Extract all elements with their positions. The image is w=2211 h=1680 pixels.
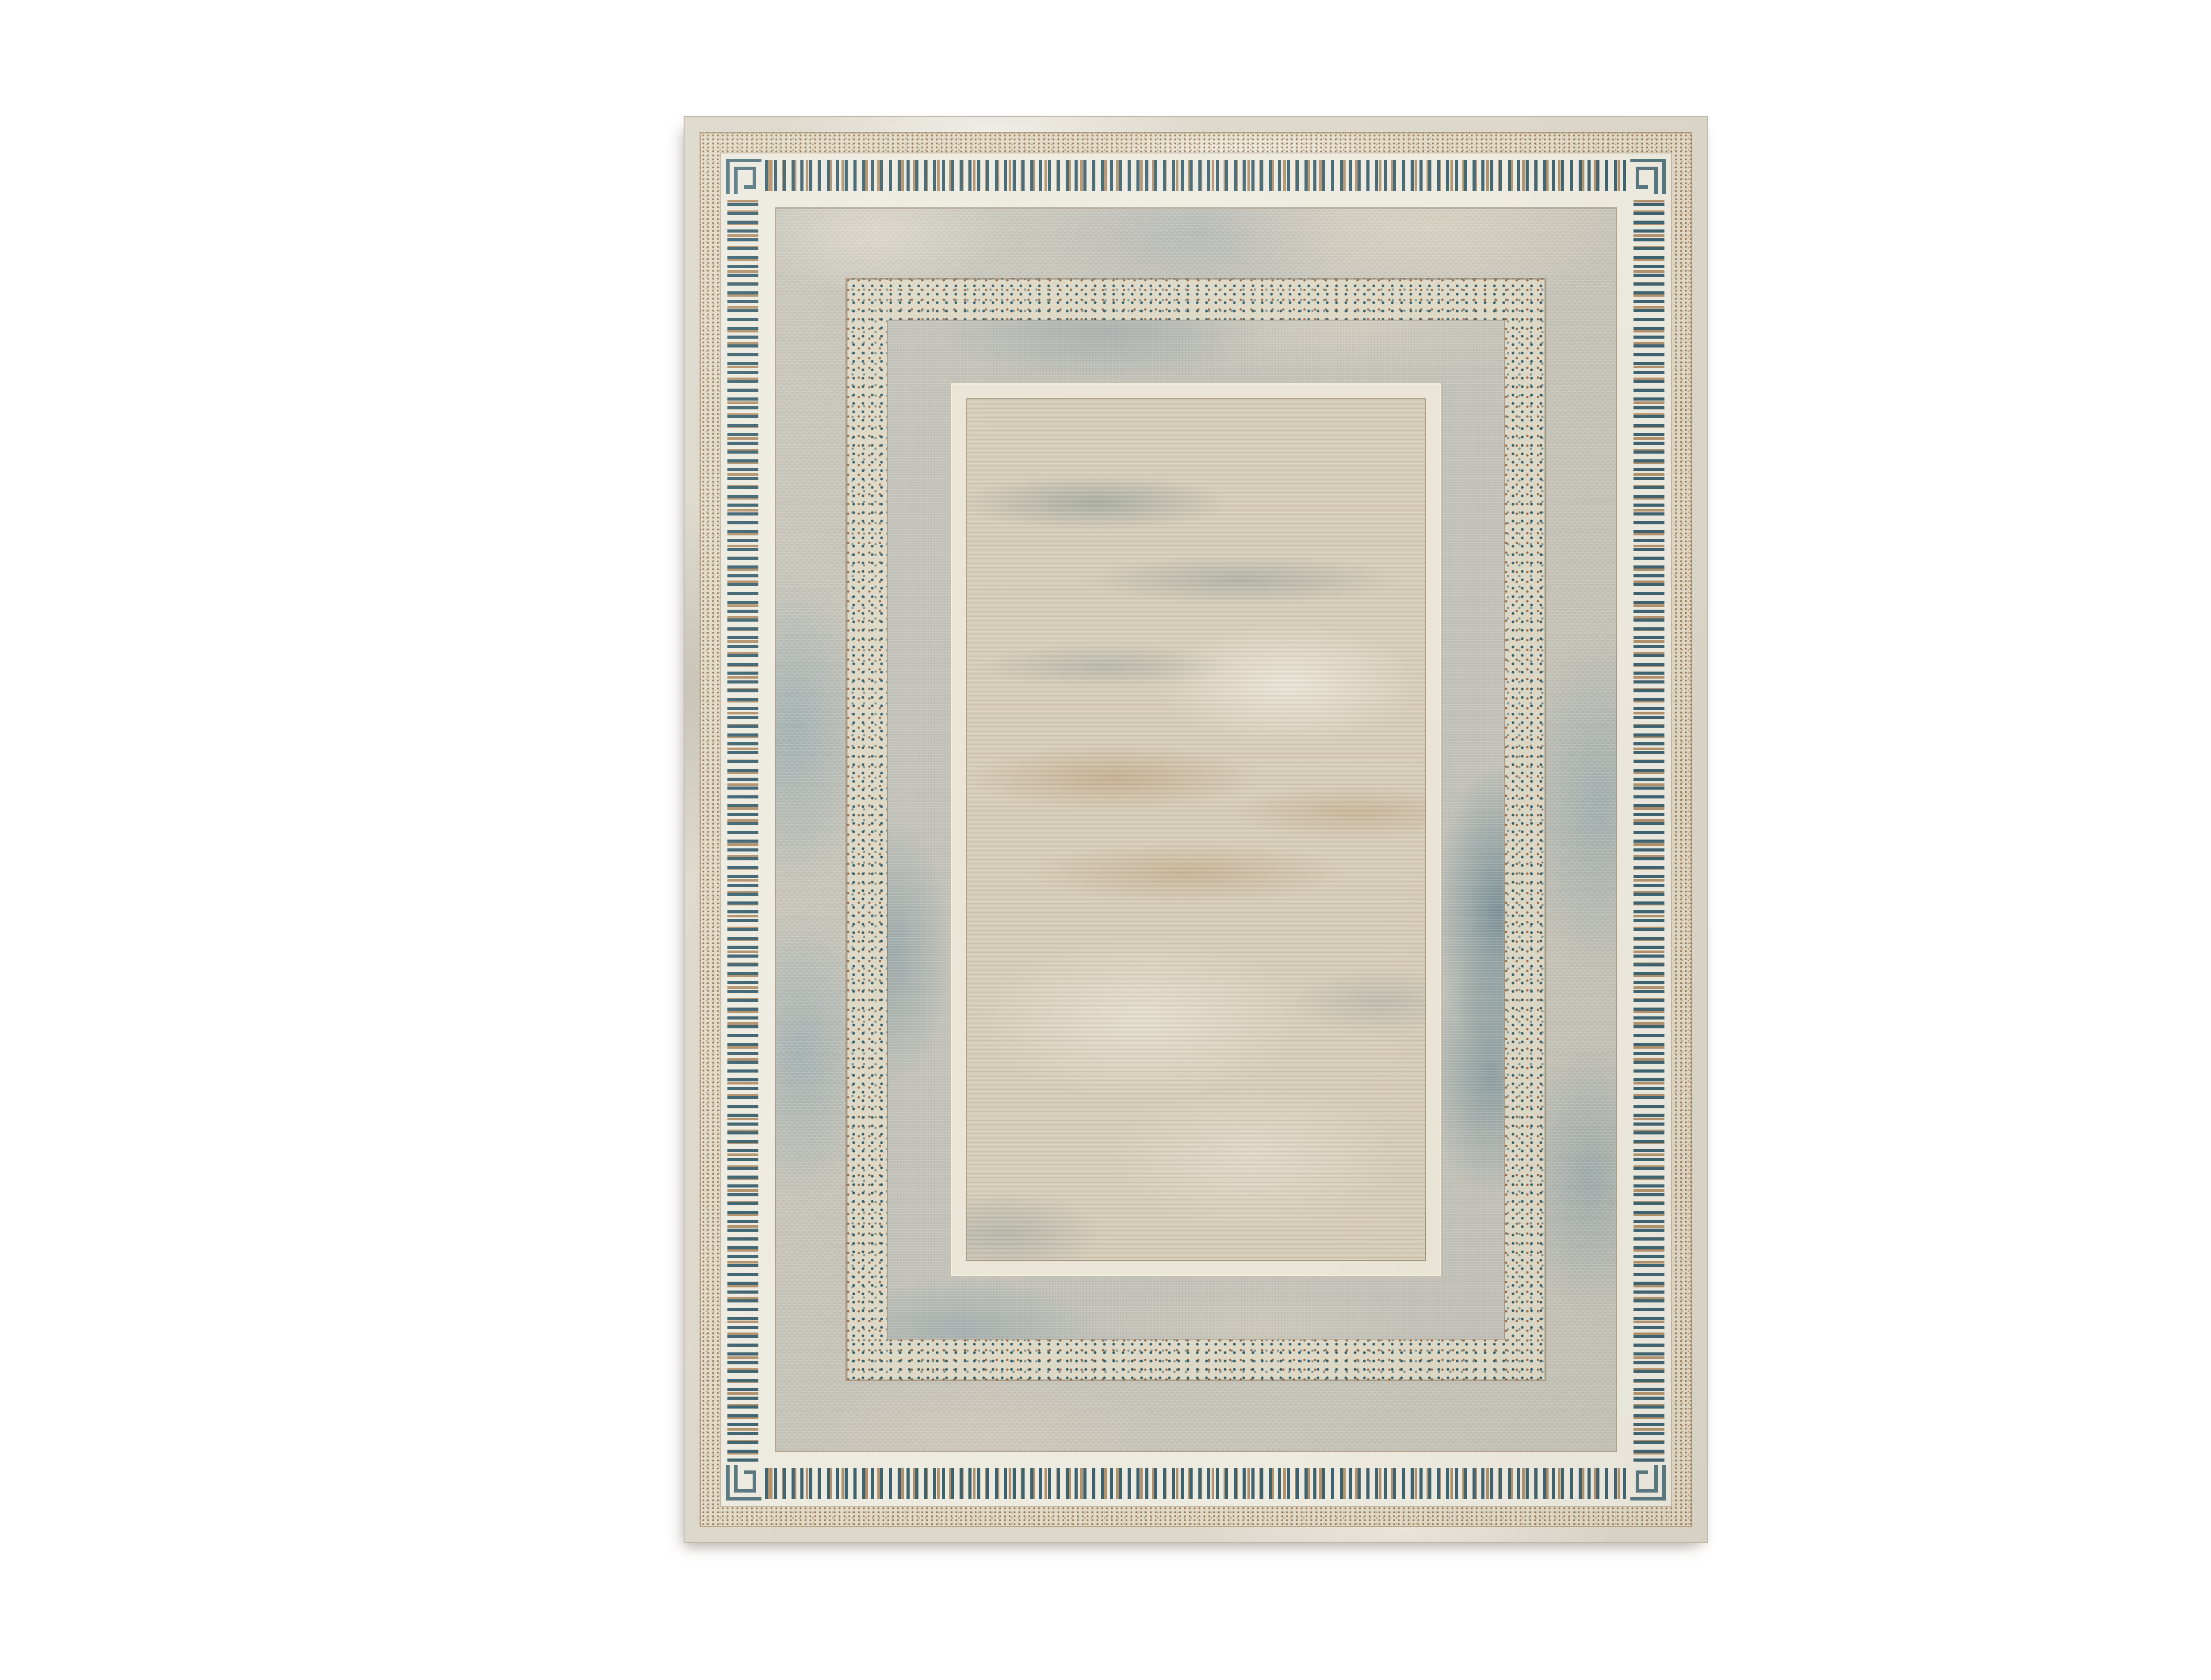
greek-key-corner-icon — [1627, 153, 1671, 198]
tick-strip-left — [721, 198, 765, 1462]
rug — [684, 116, 1708, 1543]
photo-background — [0, 0, 2211, 1680]
tick-strip-top — [765, 153, 1627, 198]
rug-inner-field — [966, 398, 1426, 1261]
greek-key-corner-icon — [721, 153, 765, 198]
greek-key-corner-icon — [1627, 1462, 1671, 1506]
tick-strip-right — [1627, 198, 1671, 1462]
greek-key-corner-icon — [721, 1462, 765, 1506]
tick-strip-bottom — [765, 1462, 1627, 1506]
